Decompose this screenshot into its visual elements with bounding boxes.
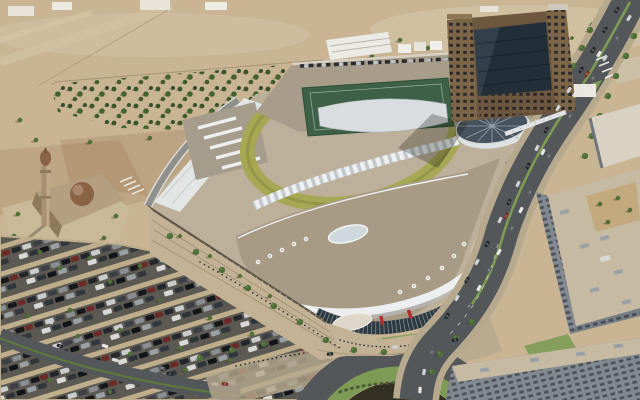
aerial-render: Aerial architectural rendering of a larg… (0, 0, 640, 400)
tower-penthouse (548, 4, 568, 10)
aerial-render-svg: Aerial architectural rendering of a larg… (0, 0, 640, 400)
mosque-dome (70, 182, 94, 206)
